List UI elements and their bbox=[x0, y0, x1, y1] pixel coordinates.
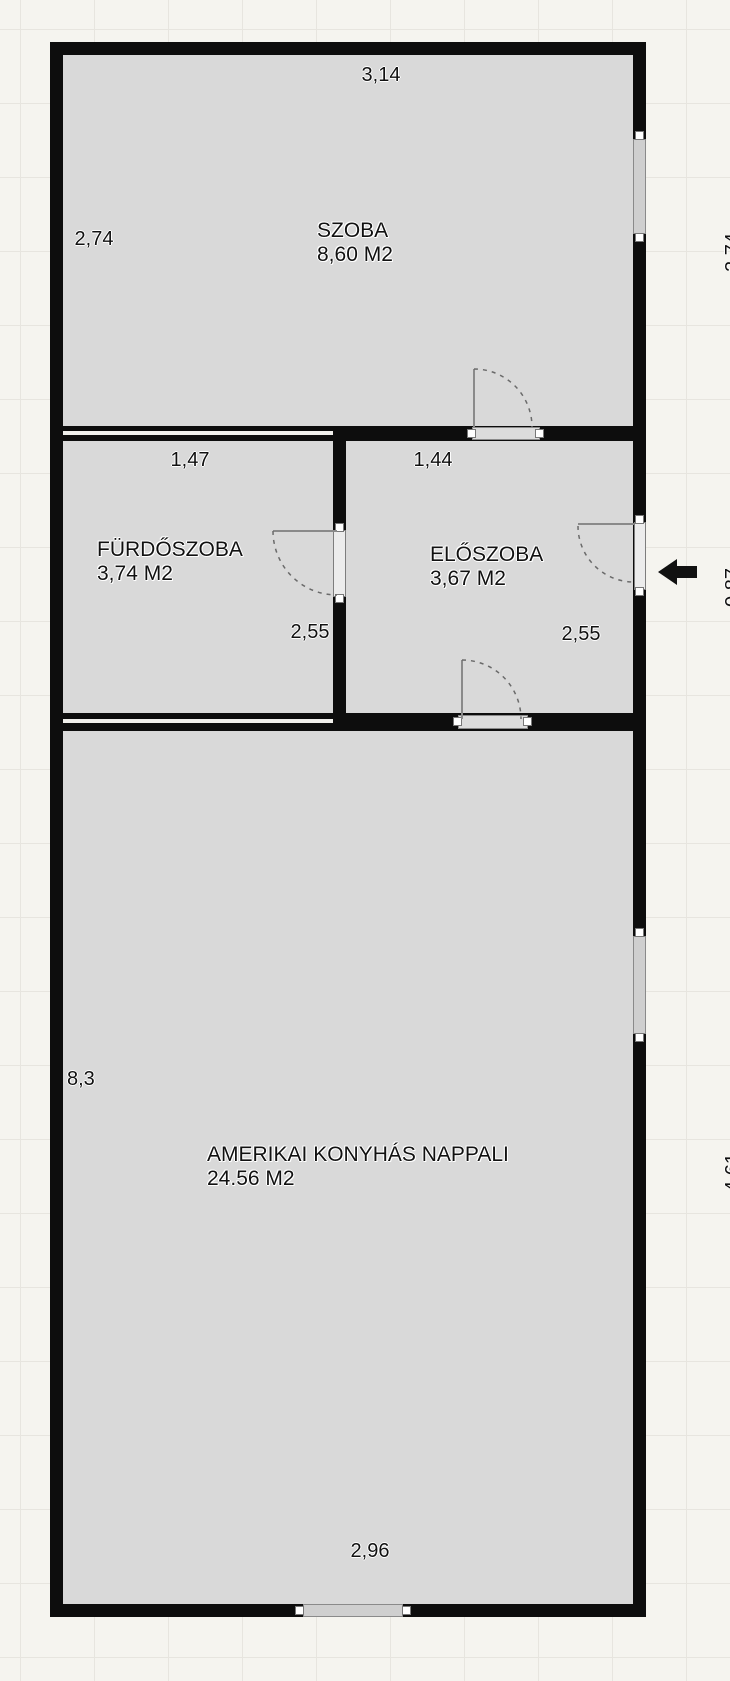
entrance-arrow-icon bbox=[658, 559, 697, 585]
room-label-furdoszoba: FÜRDŐSZOBA 3,74 M2 bbox=[97, 538, 243, 586]
frame-cap bbox=[635, 1033, 644, 1042]
frame-cap bbox=[402, 1606, 411, 1615]
frame-cap bbox=[635, 928, 644, 937]
frame-cap bbox=[467, 429, 476, 438]
door-opening-nappali bbox=[458, 715, 528, 729]
window-szoba bbox=[633, 139, 646, 234]
room-name: SZOBA bbox=[317, 219, 393, 243]
dim-furdoszoba-height: 2,55 bbox=[291, 621, 330, 643]
room-name: ELŐSZOBA bbox=[430, 543, 543, 567]
frame-cap bbox=[635, 515, 644, 524]
apartment-outline bbox=[50, 42, 646, 1617]
frame-cap bbox=[635, 233, 644, 242]
dim-right-clipped-bottom: 4,61 bbox=[722, 1153, 730, 1192]
room-area: 8,60 M2 bbox=[317, 243, 393, 267]
dim-eloszoba-width: 1,44 bbox=[414, 449, 453, 471]
door-panel-entrance bbox=[634, 522, 646, 590]
frame-cap bbox=[535, 429, 544, 438]
dim-nappali-width: 2,96 bbox=[351, 1540, 390, 1562]
door-panel-furdoszoba bbox=[333, 530, 346, 597]
window-nappali-right bbox=[633, 936, 646, 1034]
room-name: AMERIKAI KONYHÁS NAPPALI bbox=[207, 1143, 509, 1167]
wall-joint-gap bbox=[63, 719, 333, 723]
frame-cap bbox=[523, 717, 532, 726]
door-opening-szoba bbox=[472, 427, 540, 440]
frame-cap bbox=[635, 587, 644, 596]
room-area: 3,74 M2 bbox=[97, 562, 243, 586]
dim-right-clipped-middle: 0,87 bbox=[722, 568, 730, 607]
room-label-nappali: AMERIKAI KONYHÁS NAPPALI 24.56 M2 bbox=[207, 1143, 509, 1191]
floorplan-canvas: 3,14 2,74 1,47 1,44 2,55 2,55 8,3 2,96 2… bbox=[0, 0, 730, 1681]
room-area: 24.56 M2 bbox=[207, 1167, 509, 1191]
dim-right-clipped-top: 2,74 bbox=[722, 233, 730, 272]
dim-eloszoba-height: 2,55 bbox=[562, 623, 601, 645]
room-label-szoba: SZOBA 8,60 M2 bbox=[317, 219, 393, 267]
room-label-eloszoba: ELŐSZOBA 3,67 M2 bbox=[430, 543, 543, 591]
frame-cap bbox=[335, 594, 344, 603]
room-name: FÜRDŐSZOBA bbox=[97, 538, 243, 562]
frame-cap bbox=[295, 1606, 304, 1615]
frame-cap bbox=[453, 717, 462, 726]
dim-szoba-width: 3,14 bbox=[362, 64, 401, 86]
frame-cap bbox=[635, 131, 644, 140]
dim-furdoszoba-width: 1,47 bbox=[171, 449, 210, 471]
dim-szoba-height: 2,74 bbox=[75, 228, 114, 250]
room-area: 3,67 M2 bbox=[430, 567, 543, 591]
dim-nappali-height: 8,3 bbox=[67, 1068, 95, 1090]
wall-joint-gap bbox=[63, 431, 333, 435]
frame-cap bbox=[335, 523, 344, 532]
window-nappali-bottom bbox=[303, 1604, 403, 1617]
